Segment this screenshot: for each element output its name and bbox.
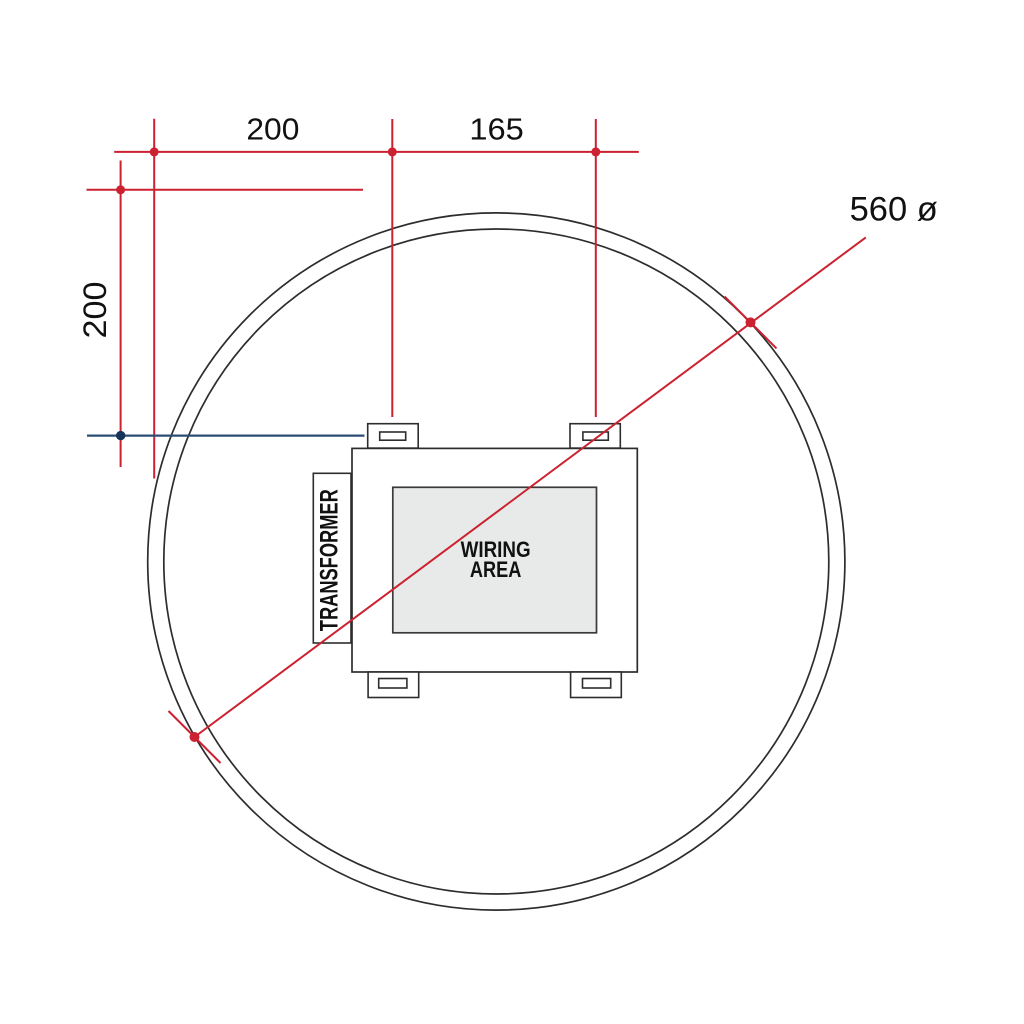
svg-text:AREA: AREA	[470, 557, 522, 582]
svg-text:165: 165	[469, 112, 524, 147]
svg-text:560 ø: 560 ø	[850, 191, 938, 229]
svg-text:TRANSFORMER: TRANSFORMER	[316, 489, 344, 631]
svg-text:200: 200	[77, 282, 113, 339]
svg-text:200: 200	[246, 112, 299, 147]
